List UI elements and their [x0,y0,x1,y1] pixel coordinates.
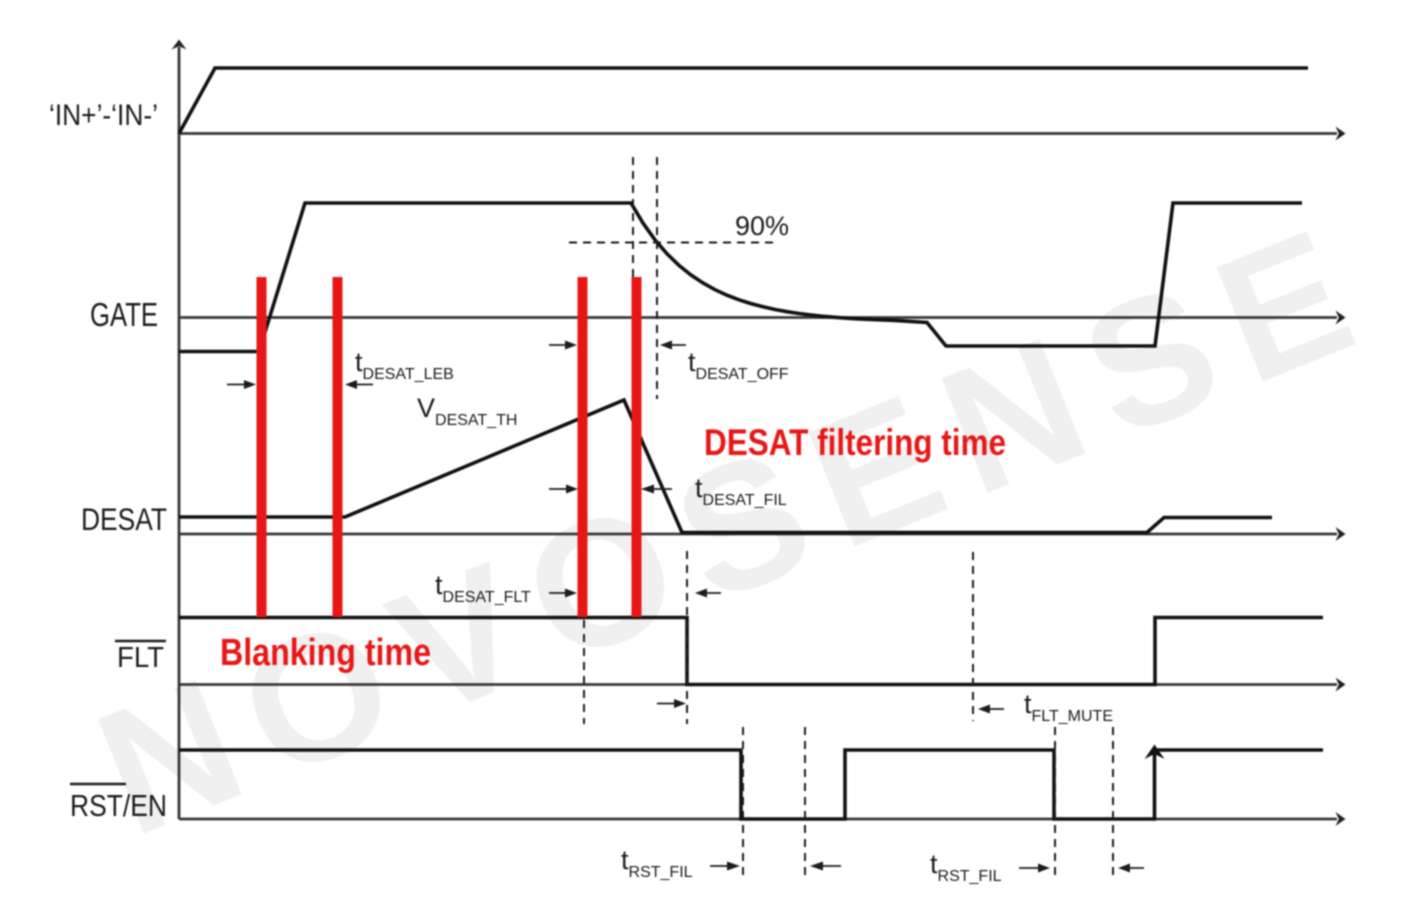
svg-text:DESAT: DESAT [81,501,167,537]
svg-text:90%: 90% [735,211,789,241]
svg-text:‘IN+’-‘IN-’: ‘IN+’-‘IN-’ [49,99,158,132]
svg-text:Blanking time: Blanking time [220,632,431,674]
svg-text:GATE: GATE [90,296,158,333]
svg-text:FLT: FLT [117,642,164,674]
svg-text:RST/EN: RST/EN [70,788,167,823]
svg-text:DESAT filtering time: DESAT filtering time [704,422,1006,463]
